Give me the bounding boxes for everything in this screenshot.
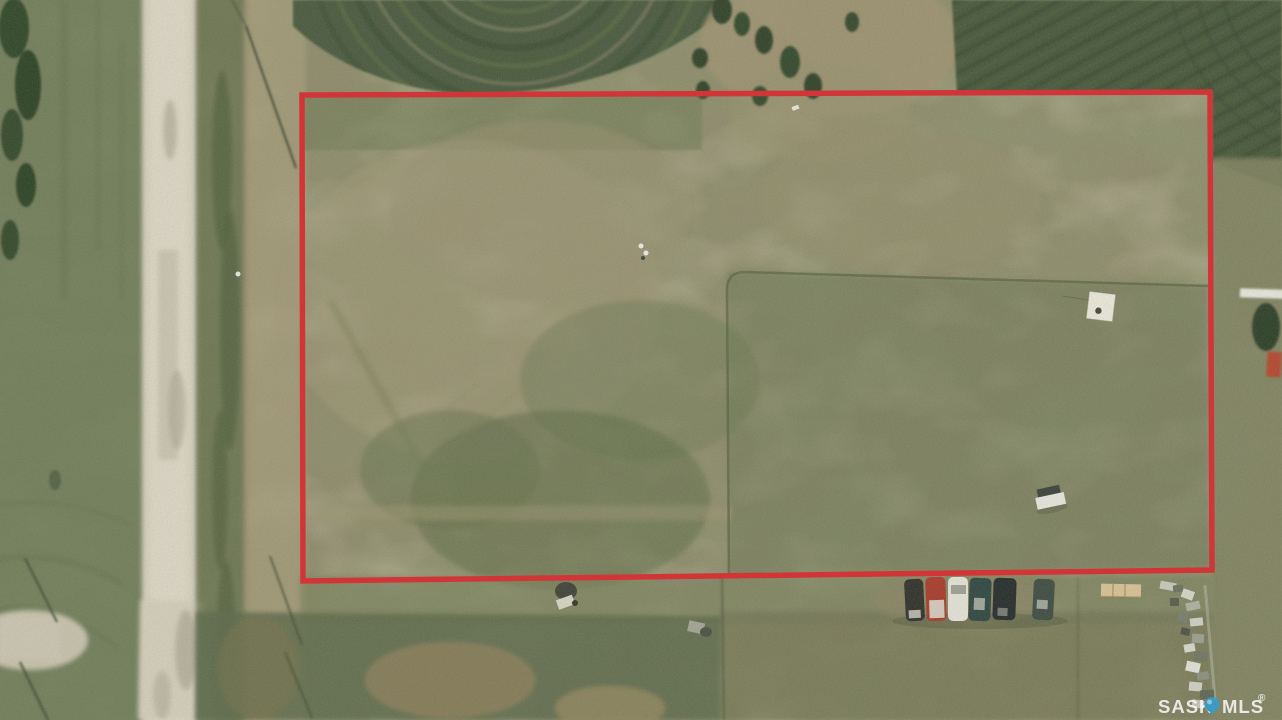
satellite-image: SASK MLS ® bbox=[0, 0, 1282, 720]
photo-grain bbox=[0, 0, 1282, 720]
listing-photo: SASK MLS ® bbox=[0, 0, 1282, 720]
watermark: SASK MLS ® bbox=[1158, 693, 1266, 717]
watermark-registered-mark: ® bbox=[1258, 693, 1266, 704]
